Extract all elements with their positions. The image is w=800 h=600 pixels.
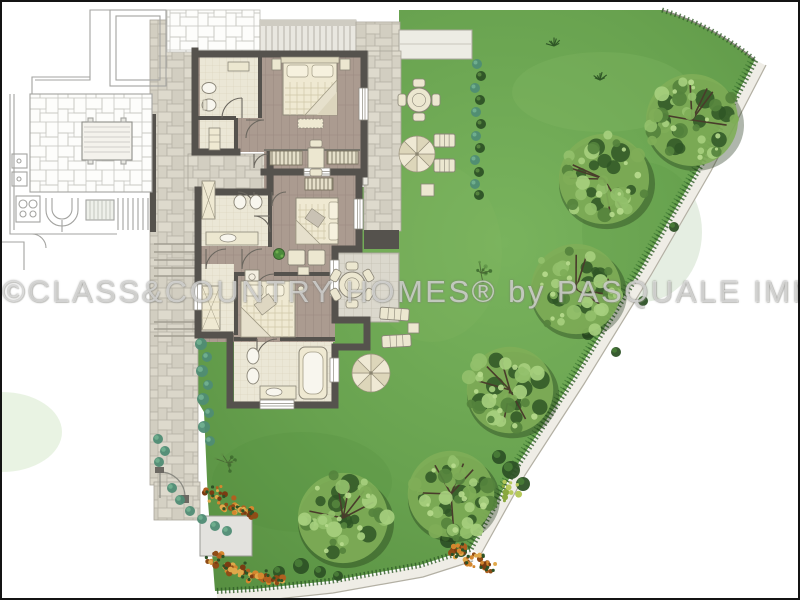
teal-shrub (210, 521, 220, 531)
outdoor-chair (432, 94, 440, 106)
bed-middle (296, 198, 338, 244)
outdoor-side-table (421, 184, 434, 196)
window (354, 199, 363, 229)
neighbor-table (82, 118, 132, 164)
hedge-shrub (470, 155, 480, 165)
hedge-shrub (475, 143, 485, 153)
side-path (364, 51, 401, 231)
sun-lounger (434, 134, 455, 147)
table (308, 148, 324, 168)
hedge-shrub (474, 167, 484, 177)
floor-plan-rendering (2, 2, 800, 600)
pillow (287, 65, 308, 77)
dark-bush (669, 222, 679, 232)
wardrobe (270, 151, 302, 165)
dark-bush (293, 558, 309, 574)
teal-shrub (167, 483, 177, 493)
parasol (399, 136, 435, 172)
teal-shrub (197, 514, 207, 524)
neighbor-spiral-stair (46, 198, 78, 232)
floor-plan-page: ©CLASS&COUNTRY HOMES® by PASQUALE IMMOBI… (0, 0, 800, 600)
teal-shrub (160, 446, 170, 456)
dining-nook (308, 140, 324, 176)
terrace-wall-top (364, 230, 399, 249)
window (330, 358, 339, 382)
sun-lounger (382, 334, 412, 348)
neighbor-cooktop (16, 196, 40, 222)
hedge-shrub (476, 119, 486, 129)
outdoor-chair (413, 79, 425, 87)
teal-shrub (203, 380, 213, 390)
coffee-table (298, 267, 309, 275)
pillow (329, 202, 338, 219)
outdoor-chair (346, 300, 358, 308)
plant (274, 249, 285, 260)
dark-bush (502, 461, 520, 479)
hedge-shrub (470, 83, 480, 93)
teal-shrub (202, 352, 212, 362)
dark-bush (333, 571, 343, 581)
outdoor-chair (413, 113, 425, 121)
teal-shrub (195, 338, 207, 350)
bed-upper (281, 57, 339, 115)
bidet (250, 195, 262, 209)
chair (310, 140, 322, 147)
teal-shrub (196, 365, 208, 377)
outdoor-chair (346, 262, 358, 270)
armchair (308, 250, 325, 265)
concrete-pad (200, 516, 252, 556)
hedge-shrub (474, 190, 484, 200)
pillow (245, 285, 263, 296)
sink (202, 83, 216, 94)
teal-shrub (205, 436, 215, 446)
hedge-shrub (472, 59, 482, 69)
teal-shrub (198, 421, 210, 433)
entrance-patio (188, 154, 270, 190)
bath-shelf (228, 62, 249, 71)
top-stair-band (260, 20, 356, 55)
hedge-shrub (470, 179, 480, 189)
outdoor-side-table (408, 323, 419, 333)
window (359, 88, 368, 120)
window (194, 284, 202, 310)
sun-lounger (434, 159, 455, 172)
lamp (298, 286, 304, 292)
upper-patio-paving (167, 10, 260, 52)
dark-bush (314, 566, 326, 578)
teal-shrub (175, 495, 185, 505)
dresser (305, 178, 333, 190)
teal-shrub (197, 393, 209, 405)
utility-cabinet (209, 128, 220, 150)
neighbor-outline-plan (2, 10, 166, 270)
hedge-shrub (476, 71, 486, 81)
dark-bush (638, 296, 648, 306)
parasol (352, 354, 390, 392)
chair (310, 169, 322, 176)
dark-bush (611, 347, 621, 357)
teal-shrub (222, 526, 232, 536)
hedge-shrub (471, 131, 481, 141)
neighbor-steps (86, 198, 148, 230)
teal-shrub (153, 434, 163, 444)
nightstand (272, 59, 281, 70)
toilet (247, 348, 259, 364)
bed-bench (298, 119, 323, 128)
bidet (247, 368, 259, 384)
bed-lower (241, 281, 295, 337)
nightstand (340, 59, 350, 70)
hedge-shrub (475, 95, 485, 105)
flower-bed (479, 560, 497, 573)
teal-shrub (204, 408, 214, 418)
pillow (329, 223, 338, 240)
sun-lounger (380, 307, 410, 321)
teal-shrub (185, 506, 195, 516)
dark-bush (492, 450, 506, 464)
wardrobe (327, 151, 358, 164)
pillow (312, 65, 333, 77)
armchair (288, 250, 305, 265)
outdoor-chair (398, 94, 406, 106)
window (260, 400, 294, 409)
hedge-shrub (471, 107, 481, 117)
toilet (234, 195, 246, 209)
teal-shrub (154, 457, 164, 467)
